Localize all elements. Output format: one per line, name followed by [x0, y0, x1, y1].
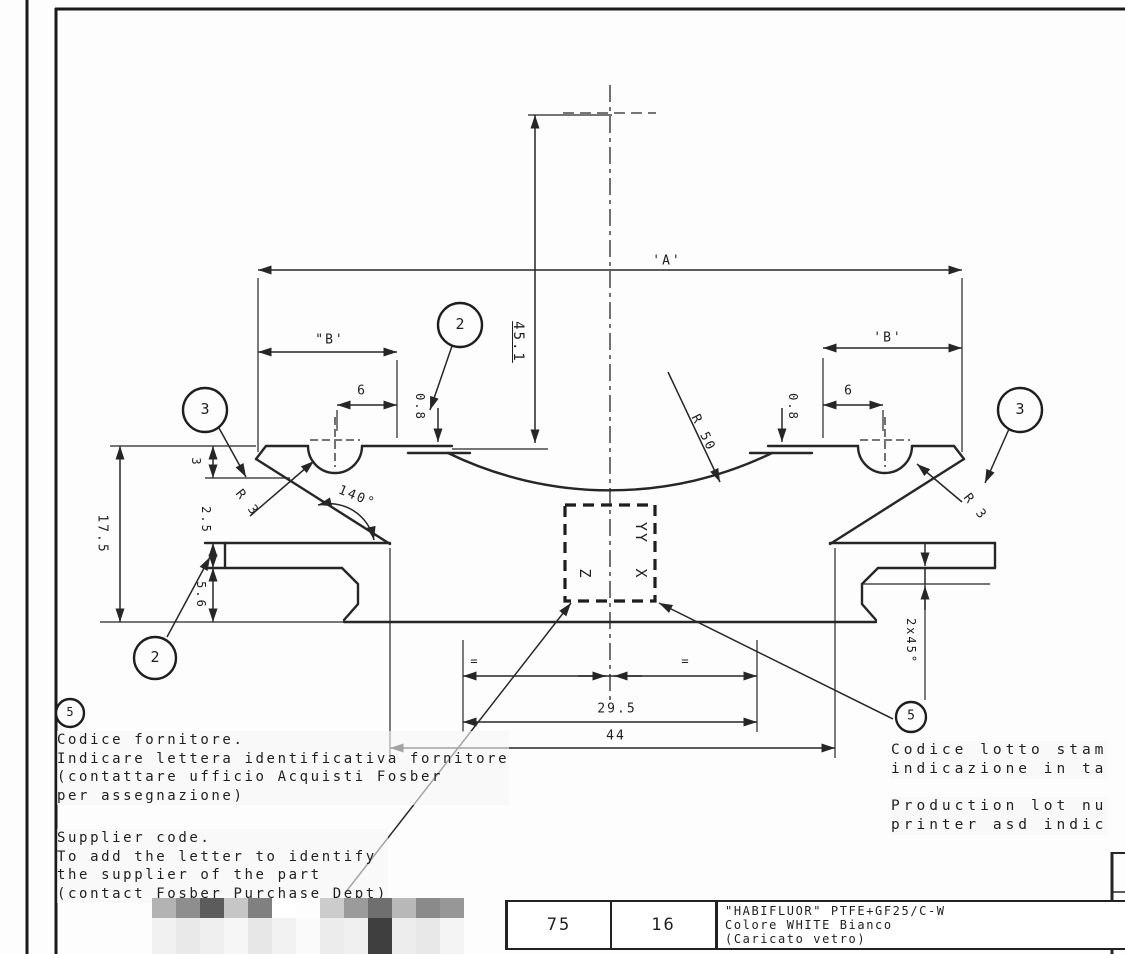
censored-block: [224, 898, 248, 918]
censored-block: [344, 918, 368, 954]
table-cell-dim-b: 16: [610, 902, 715, 948]
table-cell-material: "HABIFLUOR" PTFE+GF25/C-W Colore WHITE B…: [715, 902, 1125, 948]
note-line: per assegnazione): [57, 787, 509, 806]
material-table-row: 75 16 "HABIFLUOR" PTFE+GF25/C-W Colore W…: [505, 900, 1125, 950]
dim-label-eq-left: =: [470, 654, 479, 668]
balloon-2-top: 2: [455, 315, 464, 333]
censored-block: [224, 918, 248, 954]
dim-label-B-right: 'B': [873, 331, 902, 346]
dim-label-5-6: 5.6: [194, 581, 208, 609]
dim-label-45-1: 45.1: [510, 321, 526, 363]
note-line: Production lot nu: [891, 797, 1107, 816]
centerlines: [310, 85, 910, 705]
censored-block: [296, 918, 320, 954]
censored-block: [200, 898, 224, 918]
censored-block: [416, 898, 440, 918]
censored-block: [368, 918, 392, 954]
dim-label-A: 'A': [652, 254, 681, 269]
censored-block: [176, 898, 200, 918]
note-line: To add the letter to identify: [57, 848, 388, 867]
censored-block: [368, 898, 392, 918]
dim-label-3: 3: [189, 457, 203, 466]
censored-block: [200, 918, 224, 954]
drawing-sheet: 'A' "B' 'B' 45.1 6 6 0.8 0.8 R 50 140° R…: [0, 0, 1125, 954]
dim-label-44: 44: [606, 729, 626, 744]
note-line: Indicare lettera identificativa fornitor…: [57, 750, 509, 769]
censored-block: [272, 898, 296, 918]
note-line: the supplier of the part: [57, 866, 388, 885]
censored-block: [344, 898, 368, 918]
marking-letter-z: Z: [576, 568, 594, 579]
censored-block: [248, 918, 272, 954]
dim-label-6-left: 6: [357, 384, 367, 399]
marking-letter-x: X: [632, 568, 650, 579]
censored-block: [248, 898, 272, 918]
dim-label-B-left: "B': [315, 333, 344, 348]
note-line: indicazione in ta: [891, 760, 1107, 779]
censored-block: [392, 898, 416, 918]
censored-block: [296, 898, 320, 918]
dim-label-29-5: 29.5: [597, 702, 636, 717]
note-line: (contattare ufficio Acquisti Fosber: [57, 768, 509, 787]
censored-block: [320, 898, 344, 918]
note-lot-english: Production lot nu printer asd indic: [891, 797, 1107, 835]
dim-label-0-8-right: 0.8: [786, 393, 800, 421]
censored-block: [176, 918, 200, 954]
balloon-3-right: 3: [1015, 400, 1024, 418]
material-line: Colore WHITE Bianco: [725, 918, 1125, 932]
balloon-3-left: 3: [200, 400, 209, 418]
censored-block: [272, 918, 296, 954]
part-outline: [205, 446, 995, 622]
censored-block: [416, 918, 440, 954]
censored-block: [320, 918, 344, 954]
material-line: "HABIFLUOR" PTFE+GF25/C-W: [725, 904, 1125, 918]
note-line: Codice fornitore.: [57, 731, 509, 750]
note-line: printer asd indic: [891, 816, 1107, 835]
dim-label-2-5: 2.5: [199, 506, 213, 534]
censored-block: [440, 918, 464, 954]
material-line: (Caricato vetro): [725, 932, 1125, 946]
table-cell-dim-a: 75: [505, 902, 610, 948]
censored-block: [440, 898, 464, 918]
dim-label-17-5: 17.5: [95, 514, 110, 553]
note-supplier-english: Supplier code. To add the letter to iden…: [57, 829, 388, 903]
dim-label-2x45: 2x45°: [904, 618, 918, 664]
extension-lines: [100, 115, 990, 758]
dim-label-eq-right: =: [681, 654, 690, 668]
dimension-lines: [120, 115, 962, 748]
dim-label-6-right: 6: [844, 384, 854, 399]
balloon-5-right: 5: [907, 709, 915, 724]
balloon-2-bottom: 2: [150, 648, 159, 666]
censored-block: [152, 918, 176, 954]
dim-label-0-8-left: 0.8: [413, 393, 427, 421]
balloon-5-left: 5: [66, 705, 73, 719]
note-supplier-italian: Codice fornitore. Indicare lettera ident…: [57, 731, 509, 805]
censored-block: [152, 898, 176, 918]
censored-block: [392, 918, 416, 954]
note-line: Supplier code.: [57, 829, 388, 848]
marking-letter-yy: YY: [632, 522, 650, 544]
note-lot-italian: Codice lotto stam indicazione in ta: [891, 741, 1107, 779]
note-line: Codice lotto stam: [891, 741, 1107, 760]
